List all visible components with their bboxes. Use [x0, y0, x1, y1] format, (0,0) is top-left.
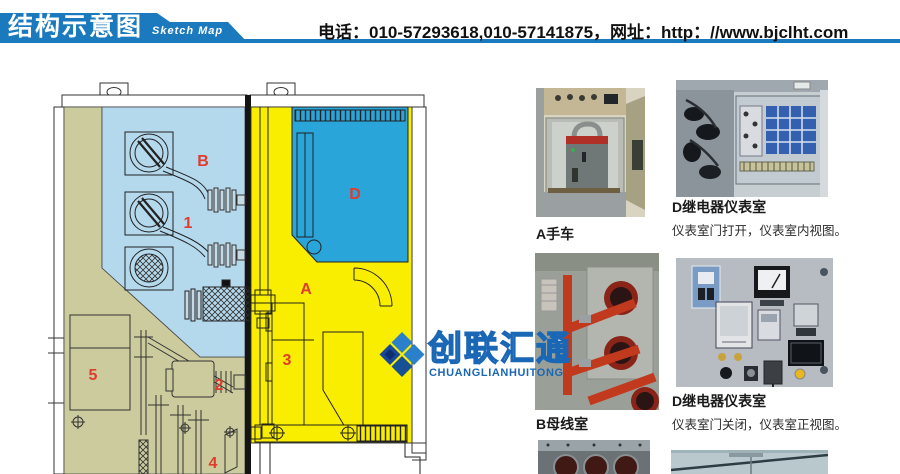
caption-d-closed-sub: 仪表室门关闭，仪表室正视图。: [672, 414, 847, 433]
photo-a-handcart: [536, 88, 645, 217]
page-title: 结构示意图: [8, 13, 158, 41]
diagram-label-1: 1: [184, 215, 193, 232]
caption-a-handcart: A手车: [536, 224, 574, 244]
diagram-label-5: 5: [89, 367, 98, 384]
diagram-label-B: B: [197, 153, 209, 170]
caption-d-open-sub: 仪表室门打开，仪表室内视图。: [672, 220, 847, 239]
diagram-label-A: A: [300, 281, 312, 298]
photo-partial-bushings: [538, 440, 650, 474]
company-name-cn: 创联汇通: [427, 330, 572, 368]
diagram-label-3: 3: [283, 352, 292, 369]
page-title-en: Sketch Map: [152, 25, 223, 37]
instrument-chamber-region: [292, 107, 408, 262]
photo-d-instrument-open: [676, 80, 828, 197]
company-logo: 创联汇通 CHUANGLIANHUITONG: [375, 318, 610, 390]
caption-d-closed: D继电器仪表室 仪表室门关闭，仪表室正视图。: [672, 391, 847, 433]
caption-b-busbar: B母线室: [536, 414, 588, 434]
company-name-en: CHUANGLIANHUITONG: [429, 367, 564, 379]
caption-d-open: D继电器仪表室 仪表室门打开，仪表室内视图。: [672, 197, 847, 239]
logo-diamond-icon: [380, 332, 425, 377]
contact-info: 电话：010-57293618,010-57141875，网址：http：//w…: [318, 18, 888, 43]
photo-d-instrument-closed: [676, 258, 833, 387]
photo-partial-panel: [671, 450, 828, 474]
diagram-label-D: D: [349, 186, 361, 203]
caption-d-closed-title: D继电器仪表室: [672, 391, 847, 411]
diagram-label-4: 4: [209, 455, 218, 472]
structure-diagram: B 1 D A 3 2 5 4: [38, 75, 440, 474]
cabinet-divider: [245, 95, 251, 474]
diagram-label-2: 2: [215, 377, 224, 394]
caption-d-open-title: D继电器仪表室: [672, 197, 847, 217]
page: 结构示意图 Sketch Map 电话：010-57293618,010-571…: [0, 0, 900, 474]
